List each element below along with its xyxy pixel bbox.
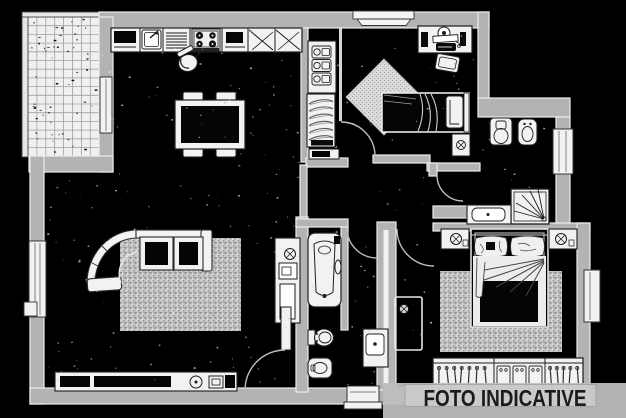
svg-text:FOTO INDICATIVE: FOTO INDICATIVE	[424, 385, 587, 411]
